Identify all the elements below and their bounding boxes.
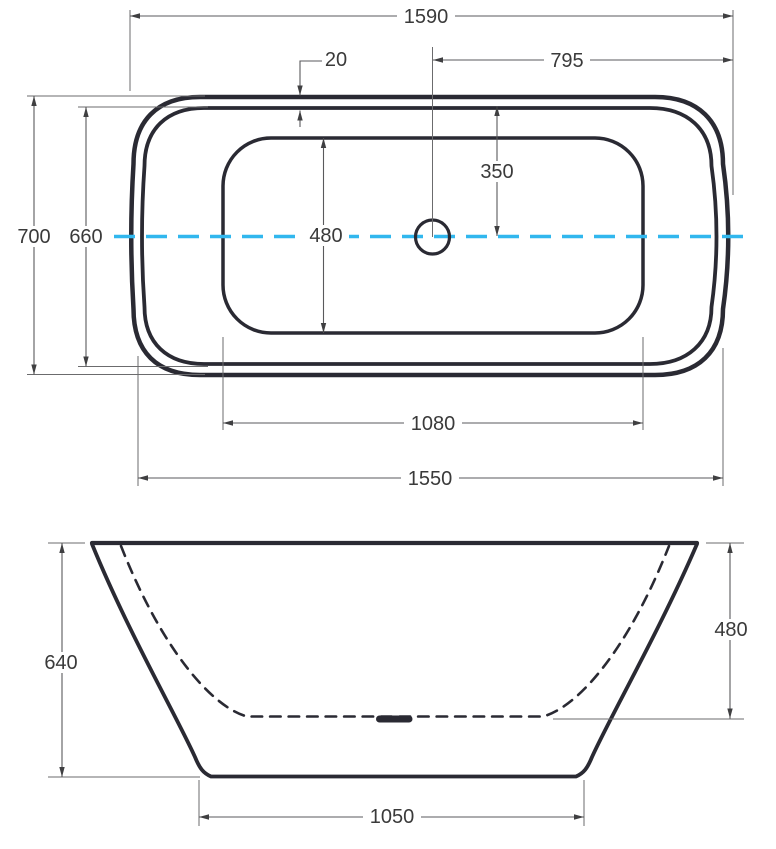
dim-label-body-width-bottom: 1550: [408, 468, 453, 490]
drawing-canvas: 1590 20 795 350 480 660 700 1080 1550 64…: [0, 0, 776, 849]
tub-front-interior-dashed-outline: [121, 546, 669, 717]
dim-label-overall-depth: 700: [17, 226, 50, 248]
dim-label-basin-inner-length: 1080: [411, 413, 456, 435]
dim-label-rim-width: 20: [325, 49, 347, 71]
dim-label-base-width: 1050: [370, 806, 415, 828]
dim-label-center-to-rim-top: 350: [480, 161, 513, 183]
dim-label-basin-inner-width: 480: [309, 225, 342, 247]
dim-label-overall-height: 640: [44, 652, 77, 674]
top-view: 1590 20 795 350 480 660 700 1080 1550: [11, 5, 751, 490]
dim-label-overall-width: 1590: [404, 6, 449, 28]
dim-label-interior-depth: 480: [714, 619, 747, 641]
drain-waste-bar: [376, 716, 413, 723]
dim-leader-20-upper: [300, 61, 322, 96]
bathtub-technical-drawing: 1590 20 795 350 480 660 700 1080 1550 64…: [0, 0, 776, 849]
front-view: 640 480 1050: [38, 543, 754, 828]
dim-label-center-to-right: 795: [550, 50, 583, 72]
dim-label-inner-rim-depth: 660: [69, 226, 102, 248]
